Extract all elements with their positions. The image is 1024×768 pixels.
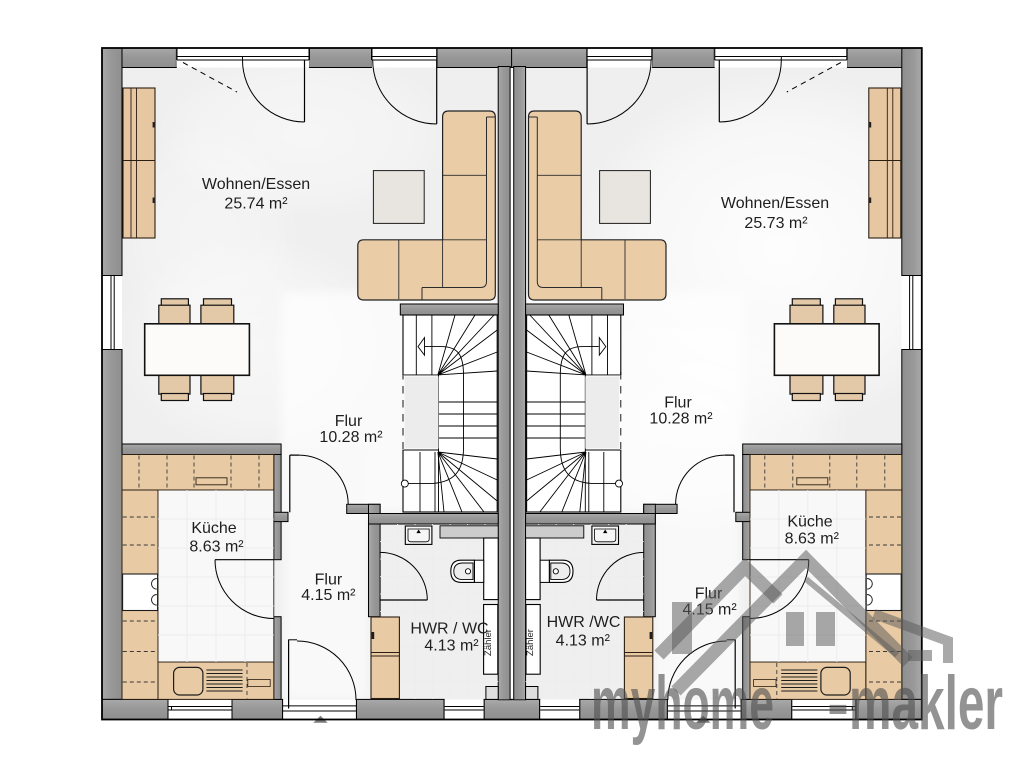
svg-text:8.63 m²: 8.63 m² — [785, 531, 840, 548]
svg-text:HWR /WC: HWR /WC — [547, 614, 621, 631]
svg-text:10.28 m²: 10.28 m² — [319, 429, 383, 446]
svg-text:10.28 m²: 10.28 m² — [649, 411, 713, 428]
svg-text:Zähler: Zähler — [483, 629, 494, 656]
svg-text:Flur: Flur — [315, 572, 343, 589]
svg-text:myhome: myhome — [591, 661, 774, 746]
svg-text:-: - — [827, 661, 849, 746]
svg-text:makler: makler — [849, 661, 1003, 746]
svg-text:Küche: Küche — [191, 520, 236, 537]
svg-text:4.13 m²: 4.13 m² — [556, 633, 611, 650]
svg-text:Wohnen/Essen: Wohnen/Essen — [721, 195, 829, 212]
svg-text:4.13 m²: 4.13 m² — [424, 638, 479, 655]
svg-text:Flur: Flur — [664, 395, 692, 412]
svg-text:Küche: Küche — [787, 514, 832, 531]
svg-text:Flur: Flur — [335, 413, 363, 430]
svg-text:4.15 m²: 4.15 m² — [301, 587, 356, 604]
svg-text:8.63 m²: 8.63 m² — [189, 539, 244, 556]
svg-text:25.74 m²: 25.74 m² — [224, 196, 288, 213]
svg-text:Wohnen/Essen: Wohnen/Essen — [202, 176, 310, 193]
svg-text:Zähler: Zähler — [525, 629, 536, 656]
svg-text:25.73 m²: 25.73 m² — [744, 215, 808, 232]
svg-text:HWR / WC: HWR / WC — [410, 621, 488, 638]
